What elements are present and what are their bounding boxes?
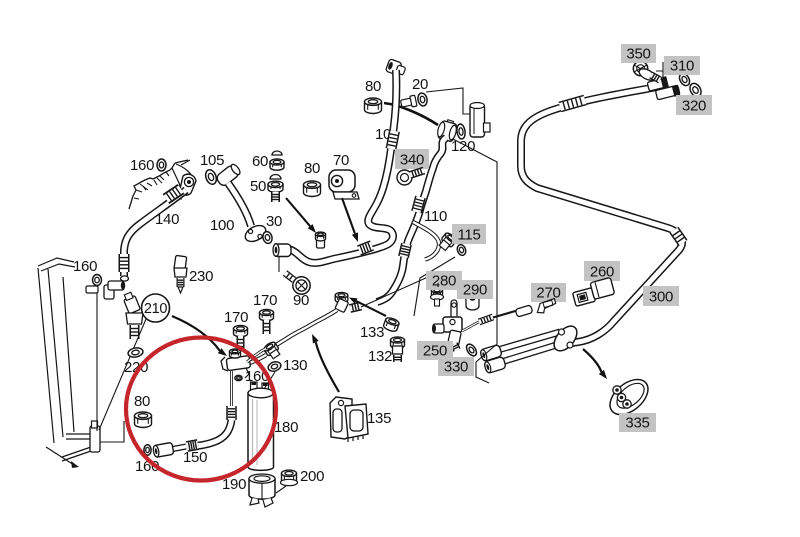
svg-text:330: 330 [444, 359, 468, 376]
svg-text:70: 70 [333, 152, 349, 169]
svg-text:90: 90 [293, 292, 309, 309]
svg-text:80: 80 [365, 78, 381, 95]
svg-text:30: 30 [266, 213, 282, 230]
svg-text:210: 210 [144, 301, 168, 317]
svg-text:270: 270 [536, 285, 560, 302]
svg-text:105: 105 [200, 152, 224, 169]
svg-text:135: 135 [367, 410, 391, 427]
svg-text:50: 50 [250, 178, 266, 195]
svg-text:133: 133 [360, 324, 384, 341]
svg-text:280: 280 [432, 273, 456, 290]
svg-text:170: 170 [253, 292, 277, 309]
svg-text:160: 160 [73, 258, 97, 275]
svg-text:150: 150 [183, 449, 207, 466]
svg-text:200: 200 [300, 468, 324, 485]
svg-text:100: 100 [210, 217, 234, 234]
svg-text:140: 140 [155, 211, 179, 228]
svg-text:180: 180 [274, 419, 298, 436]
svg-text:132: 132 [368, 348, 392, 365]
svg-text:160: 160 [130, 157, 154, 174]
svg-text:130: 130 [283, 357, 307, 374]
svg-text:230: 230 [189, 268, 213, 285]
svg-text:110: 110 [424, 208, 447, 225]
svg-text:320: 320 [682, 98, 706, 115]
svg-text:170: 170 [224, 309, 248, 326]
svg-text:310: 310 [670, 58, 694, 75]
svg-text:120: 120 [451, 138, 475, 155]
svg-text:290: 290 [463, 282, 487, 299]
svg-text:300: 300 [649, 289, 673, 306]
svg-text:80: 80 [134, 393, 150, 410]
svg-text:340: 340 [400, 152, 424, 169]
svg-text:335: 335 [625, 415, 649, 432]
svg-text:60: 60 [252, 153, 268, 170]
svg-text:115: 115 [457, 227, 480, 244]
svg-text:20: 20 [412, 76, 428, 93]
svg-text:80: 80 [304, 160, 320, 177]
svg-text:350: 350 [626, 46, 650, 63]
svg-text:250: 250 [423, 343, 447, 360]
